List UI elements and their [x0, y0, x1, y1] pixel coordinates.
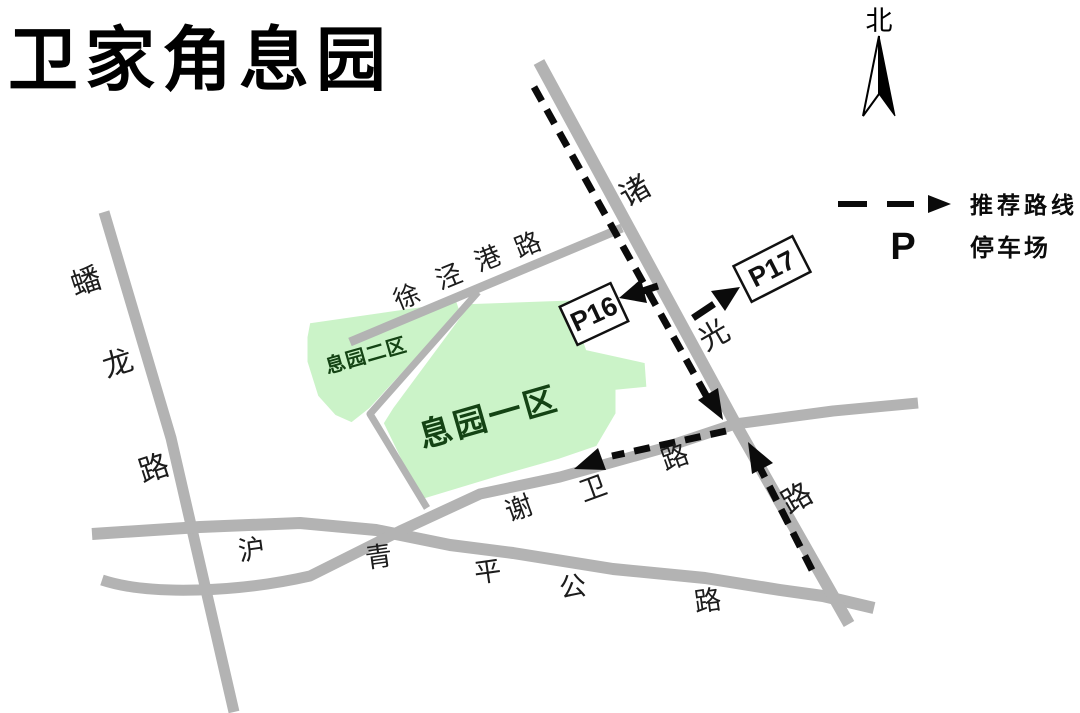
- legend-parking-symbol: P: [890, 226, 915, 268]
- road-char: 蟠: [67, 262, 106, 303]
- legend-route-arrow-icon: [928, 195, 951, 213]
- road-char: 龙: [99, 344, 138, 385]
- compass: 北: [863, 6, 895, 116]
- north-arrow-icon-filled: [879, 36, 895, 116]
- road-char: 青: [363, 540, 394, 573]
- map-page: P16 P17 蟠 龙 路 徐 泾 港 路 诸 光 路 谢 卫 路 沪 青 平 …: [0, 0, 1080, 713]
- map-title: 卫家角息园: [8, 22, 393, 100]
- road-char: 港: [470, 241, 505, 278]
- p17-arrow-line: [693, 304, 714, 318]
- road-char: 平: [472, 555, 503, 588]
- road-char: 泾: [431, 259, 466, 296]
- road-panlonglu: [104, 212, 234, 712]
- road-char: 路: [692, 584, 723, 617]
- road-label-zhuguanglu: 诸 光 路: [614, 170, 818, 521]
- north-label: 北: [866, 6, 893, 36]
- legend-parking-label: 停车场: [970, 234, 1051, 262]
- road-char: 公: [557, 570, 588, 603]
- road-char: 路: [135, 449, 174, 490]
- p17-arrow-icon: [711, 287, 740, 311]
- legend-route-label: 推荐路线: [970, 192, 1078, 218]
- north-arrow-icon: [863, 36, 879, 116]
- parking-box-p17: P17: [734, 236, 811, 302]
- road-char: 沪: [236, 533, 267, 566]
- route-arrow-north-icon: [748, 442, 773, 474]
- road-char: 谢: [501, 490, 537, 527]
- legend: 推荐路线 P 停车场: [838, 192, 1078, 268]
- map-canvas: P16 P17 蟠 龙 路 徐 泾 港 路 诸 光 路 谢 卫 路 沪 青 平 …: [0, 0, 1080, 713]
